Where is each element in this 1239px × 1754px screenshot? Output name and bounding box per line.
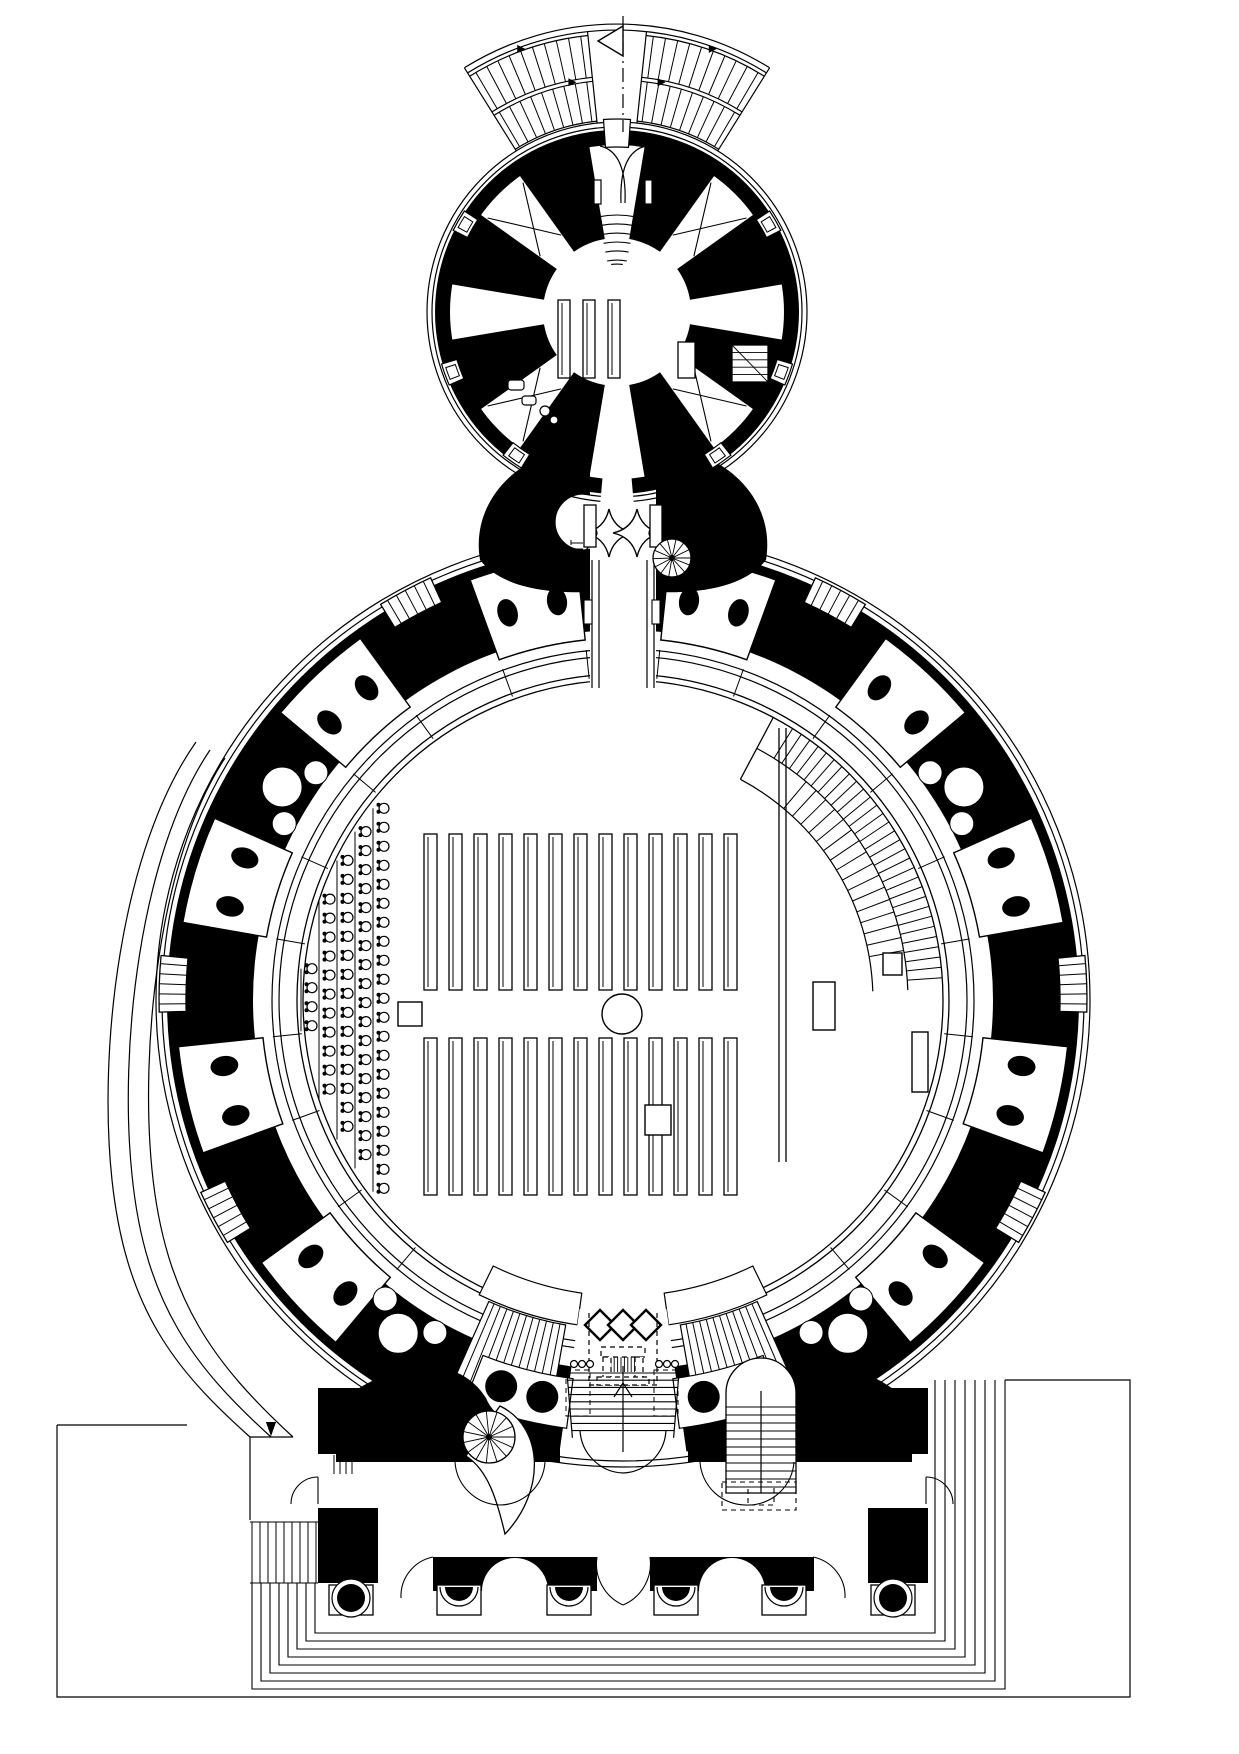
section-flag (598, 16, 623, 132)
hall-benches (398, 834, 737, 1195)
floor-plan-page (0, 0, 1239, 1754)
floor-plan-svg (0, 0, 1239, 1754)
hall-chair-rows (301, 803, 389, 1194)
portico (329, 1557, 915, 1617)
annex-rotunda (427, 119, 807, 508)
hall-curved-ramp (740, 718, 942, 1163)
